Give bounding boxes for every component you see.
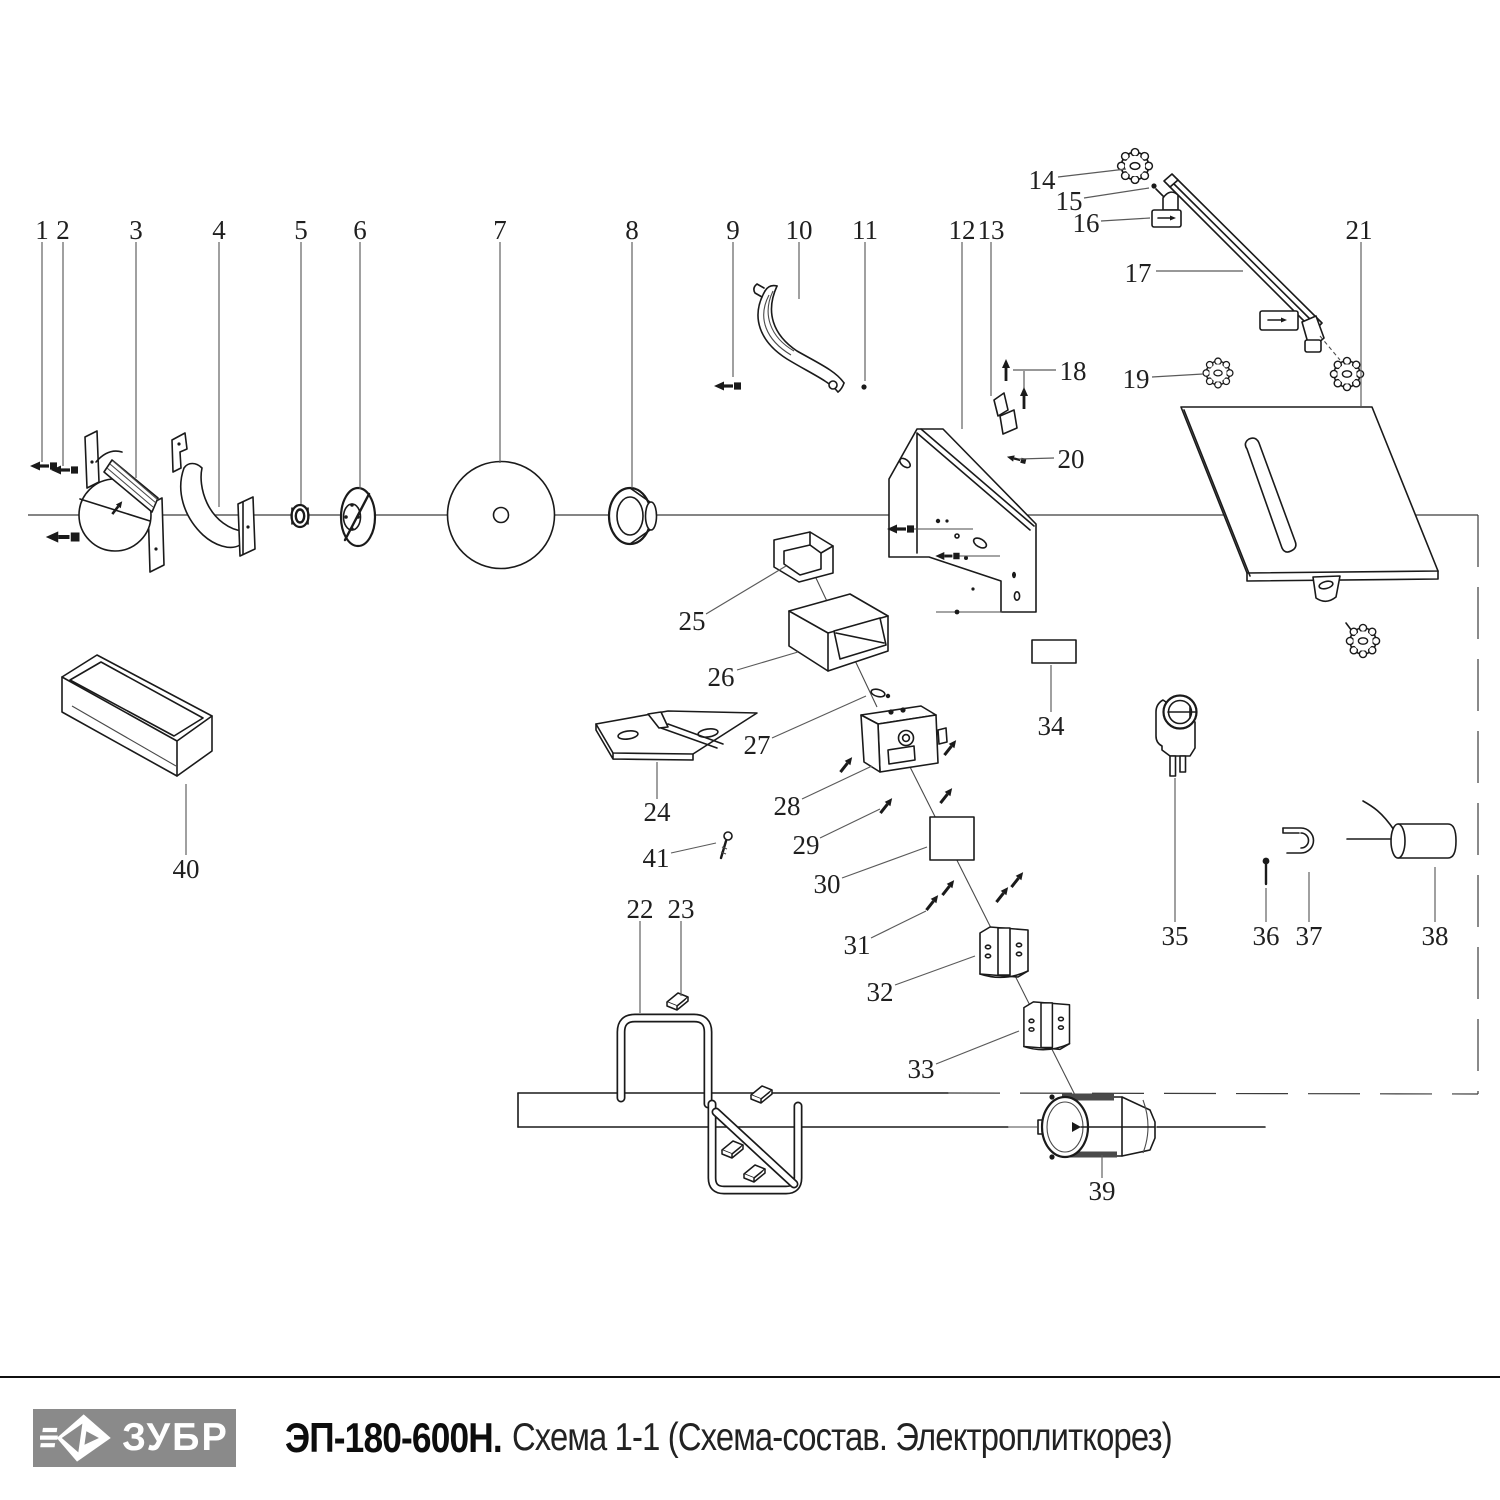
part-17-guide-rail: [1164, 174, 1364, 391]
leader-line-32: [895, 956, 975, 985]
schema-subtitle: Схема 1-1 (Схема-состав. Электроплиткоре…: [512, 1416, 1172, 1460]
part-number-26: 26: [708, 662, 735, 692]
leader-line-16: [1101, 218, 1150, 221]
part-number-36: 36: [1253, 921, 1280, 951]
zubr-logo-icon: [40, 1412, 116, 1464]
leader-line-27: [772, 696, 866, 738]
part-number-13: 13: [978, 215, 1005, 245]
part-number-14: 14: [1029, 165, 1057, 195]
leader-line-31: [871, 911, 926, 938]
part-6-flange-inner: [341, 488, 375, 546]
brand-logo: ЗУБР: [33, 1409, 236, 1467]
schema-title: ЭП-180-600Н. Схема 1-1 (Схема-состав. Эл…: [285, 1404, 1172, 1472]
part-number-12: 12: [949, 215, 976, 245]
part-number-8: 8: [625, 215, 639, 245]
part-number-37: 37: [1296, 921, 1323, 951]
brand-logo-text: ЗУБР: [122, 1419, 229, 1458]
leader-line-15: [1084, 188, 1149, 198]
part-7-cutting-disc: [448, 462, 555, 569]
part-number-5: 5: [294, 215, 308, 245]
part-number-31: 31: [844, 930, 871, 960]
part-number-40: 40: [173, 854, 200, 884]
part-32-brush-holder: [980, 927, 1028, 977]
part-9-bolt: [714, 382, 741, 391]
part-number-30: 30: [814, 869, 841, 899]
leader-line-29: [820, 809, 880, 838]
part-21-table: [1181, 407, 1438, 658]
exploded-parts-diagram: 1234567891011121314151617181920212223242…: [0, 0, 1500, 1380]
model-name: ЭП-180-600Н.: [285, 1414, 502, 1462]
part-number-23: 23: [668, 894, 695, 924]
part-24-mount-plate: [596, 711, 757, 760]
part-15-pin: [1151, 183, 1164, 197]
part-25-switch-cover: [774, 532, 833, 582]
part-number-17: 17: [1125, 258, 1152, 288]
part-5-nut: [292, 505, 309, 527]
page: { "footer": { "logo": { "text": "ЗУБР", …: [0, 0, 1500, 1500]
part-number-33: 33: [908, 1054, 935, 1084]
part-number-22: 22: [627, 894, 654, 924]
leader-line-26: [737, 652, 798, 670]
leader-line-33: [936, 1031, 1019, 1064]
part-41-screw: [721, 832, 732, 858]
part-8-flange-outer: [609, 488, 657, 544]
diagram-canvas: 1234567891011121314151617181920212223242…: [0, 0, 1500, 1380]
spare-bolt: [46, 531, 80, 542]
part-3-blade-guard-half: [79, 431, 164, 572]
leader-line-14: [1058, 169, 1126, 177]
assembly-axis-lines: [28, 515, 1478, 1094]
part-30-plate: [930, 817, 974, 860]
part-10-guard-arm: [754, 284, 844, 392]
part-number-32: 32: [867, 977, 894, 1007]
part-number-38: 38: [1422, 921, 1449, 951]
leader-line-25: [706, 566, 786, 614]
part-number-2: 2: [56, 215, 70, 245]
part-36-screw: [1263, 858, 1270, 884]
part-number-3: 3: [129, 215, 143, 245]
part-number-20: 20: [1058, 444, 1085, 474]
part-number-19: 19: [1123, 364, 1150, 394]
part-number-6: 6: [353, 215, 367, 245]
part-40-water-tray: [62, 655, 212, 776]
part-number-29: 29: [793, 830, 820, 860]
callout-layer: 1234567891011121314151617181920212223242…: [35, 165, 1448, 1206]
part-number-35: 35: [1162, 921, 1189, 951]
part-22-frame-tube: [621, 1018, 798, 1190]
part-number-4: 4: [212, 215, 226, 245]
frame-base-bar: [518, 1093, 1478, 1127]
leader-line-20: [1019, 458, 1054, 459]
part-number-11: 11: [852, 215, 878, 245]
part-number-25: 25: [679, 606, 706, 636]
part-14-star-knob: [1118, 149, 1153, 184]
part-number-18: 18: [1060, 356, 1087, 386]
part-35-power-plug: [1156, 696, 1197, 777]
part-number-39: 39: [1089, 1176, 1116, 1206]
part-19-star-knob: [1203, 358, 1233, 388]
part-number-28: 28: [774, 791, 801, 821]
leader-line-19: [1152, 374, 1203, 377]
part-26-switch-housing: [789, 594, 888, 671]
leader-line-30: [842, 847, 927, 878]
footer-divider: [0, 1376, 1500, 1378]
part-number-16: 16: [1073, 208, 1100, 238]
part-11-pin: [861, 384, 866, 389]
part-27-screw: [870, 688, 890, 698]
part-39-motor: [1008, 1094, 1155, 1160]
part-number-7: 7: [493, 215, 507, 245]
part-number-21: 21: [1346, 215, 1373, 245]
part-16-clamp-plate: [1152, 192, 1181, 227]
part-33-brush-holder: [1024, 1002, 1070, 1050]
part-number-9: 9: [726, 215, 740, 245]
part-number-10: 10: [786, 215, 813, 245]
part-28-switch: [861, 706, 947, 772]
leader-line-28: [802, 766, 872, 799]
leader-line-41: [671, 843, 716, 853]
part-number-1: 1: [35, 215, 49, 245]
part-number-27: 27: [744, 730, 771, 760]
part-37-cable-clamp: [1283, 828, 1313, 853]
part-4-blade-guard-half: [172, 433, 255, 556]
part-34-label-plate: [1032, 640, 1076, 663]
part-number-41: 41: [643, 843, 670, 873]
part-number-34: 34: [1038, 711, 1066, 741]
part-38-capacitor: [1347, 801, 1456, 858]
part-number-24: 24: [644, 797, 672, 827]
